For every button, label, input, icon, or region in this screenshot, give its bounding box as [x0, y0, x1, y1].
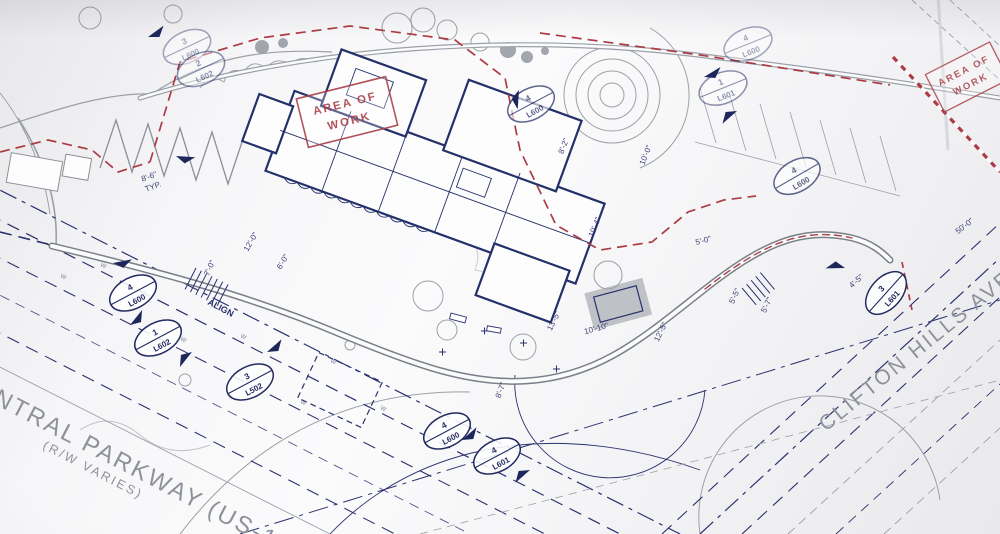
detail-callout: 4L600 [768, 150, 827, 202]
dimension-label: 4'-5" [847, 272, 865, 290]
leader-arrowhead [175, 150, 196, 167]
utility-line-label: W [379, 405, 387, 413]
dimension-label: 5'-0" [694, 234, 712, 247]
site-pad [584, 278, 652, 330]
leader-arrowhead [719, 108, 739, 124]
dashed-layout-box [298, 353, 383, 428]
utility-line-label: W [59, 273, 67, 281]
detail-callout: 4L600 [418, 406, 477, 457]
detail-callout: 1L601 [694, 64, 752, 111]
dimension-label: 12'-0" [242, 231, 260, 253]
utility-line-label: W [239, 333, 247, 341]
sawtooth-parking-edge [100, 120, 244, 184]
utility-line-label: W [329, 358, 337, 366]
detail-callout: 3L502 [221, 357, 280, 408]
align-annotation: ALIGN [206, 297, 235, 319]
detail-callout: 4L601 [468, 431, 527, 482]
leader-arrowhead [265, 339, 285, 355]
dimension-label: 5'-7" [759, 296, 774, 314]
leader-arrowhead [146, 26, 166, 40]
plus-markers [439, 328, 560, 373]
site-plan-drawing: AREA OF WORK AREA OF WORK CENTRAL PARKWA… [0, 0, 1000, 534]
street-label-clifton-hills: CLIFTON HILLS AVENUE [815, 234, 1000, 436]
dimension-label: 50'-0" [954, 216, 976, 236]
leader-arrowhead [127, 310, 148, 328]
dimension-label: 5'-5" [727, 287, 742, 305]
dimension-label: 7'-0" [202, 259, 217, 277]
leader-arrowhead [826, 259, 846, 275]
utility-line-label: W [99, 262, 107, 270]
utility-line-label: W [299, 399, 307, 407]
detail-callout: 3L601 [858, 264, 914, 322]
dimension-label: 10'-10" [583, 321, 609, 336]
site-plan-photo: AREA OF WORK AREA OF WORK CENTRAL PARKWA… [0, 0, 1000, 534]
dimension-label: 6'-0" [275, 252, 291, 270]
adjacent-building [6, 145, 91, 196]
